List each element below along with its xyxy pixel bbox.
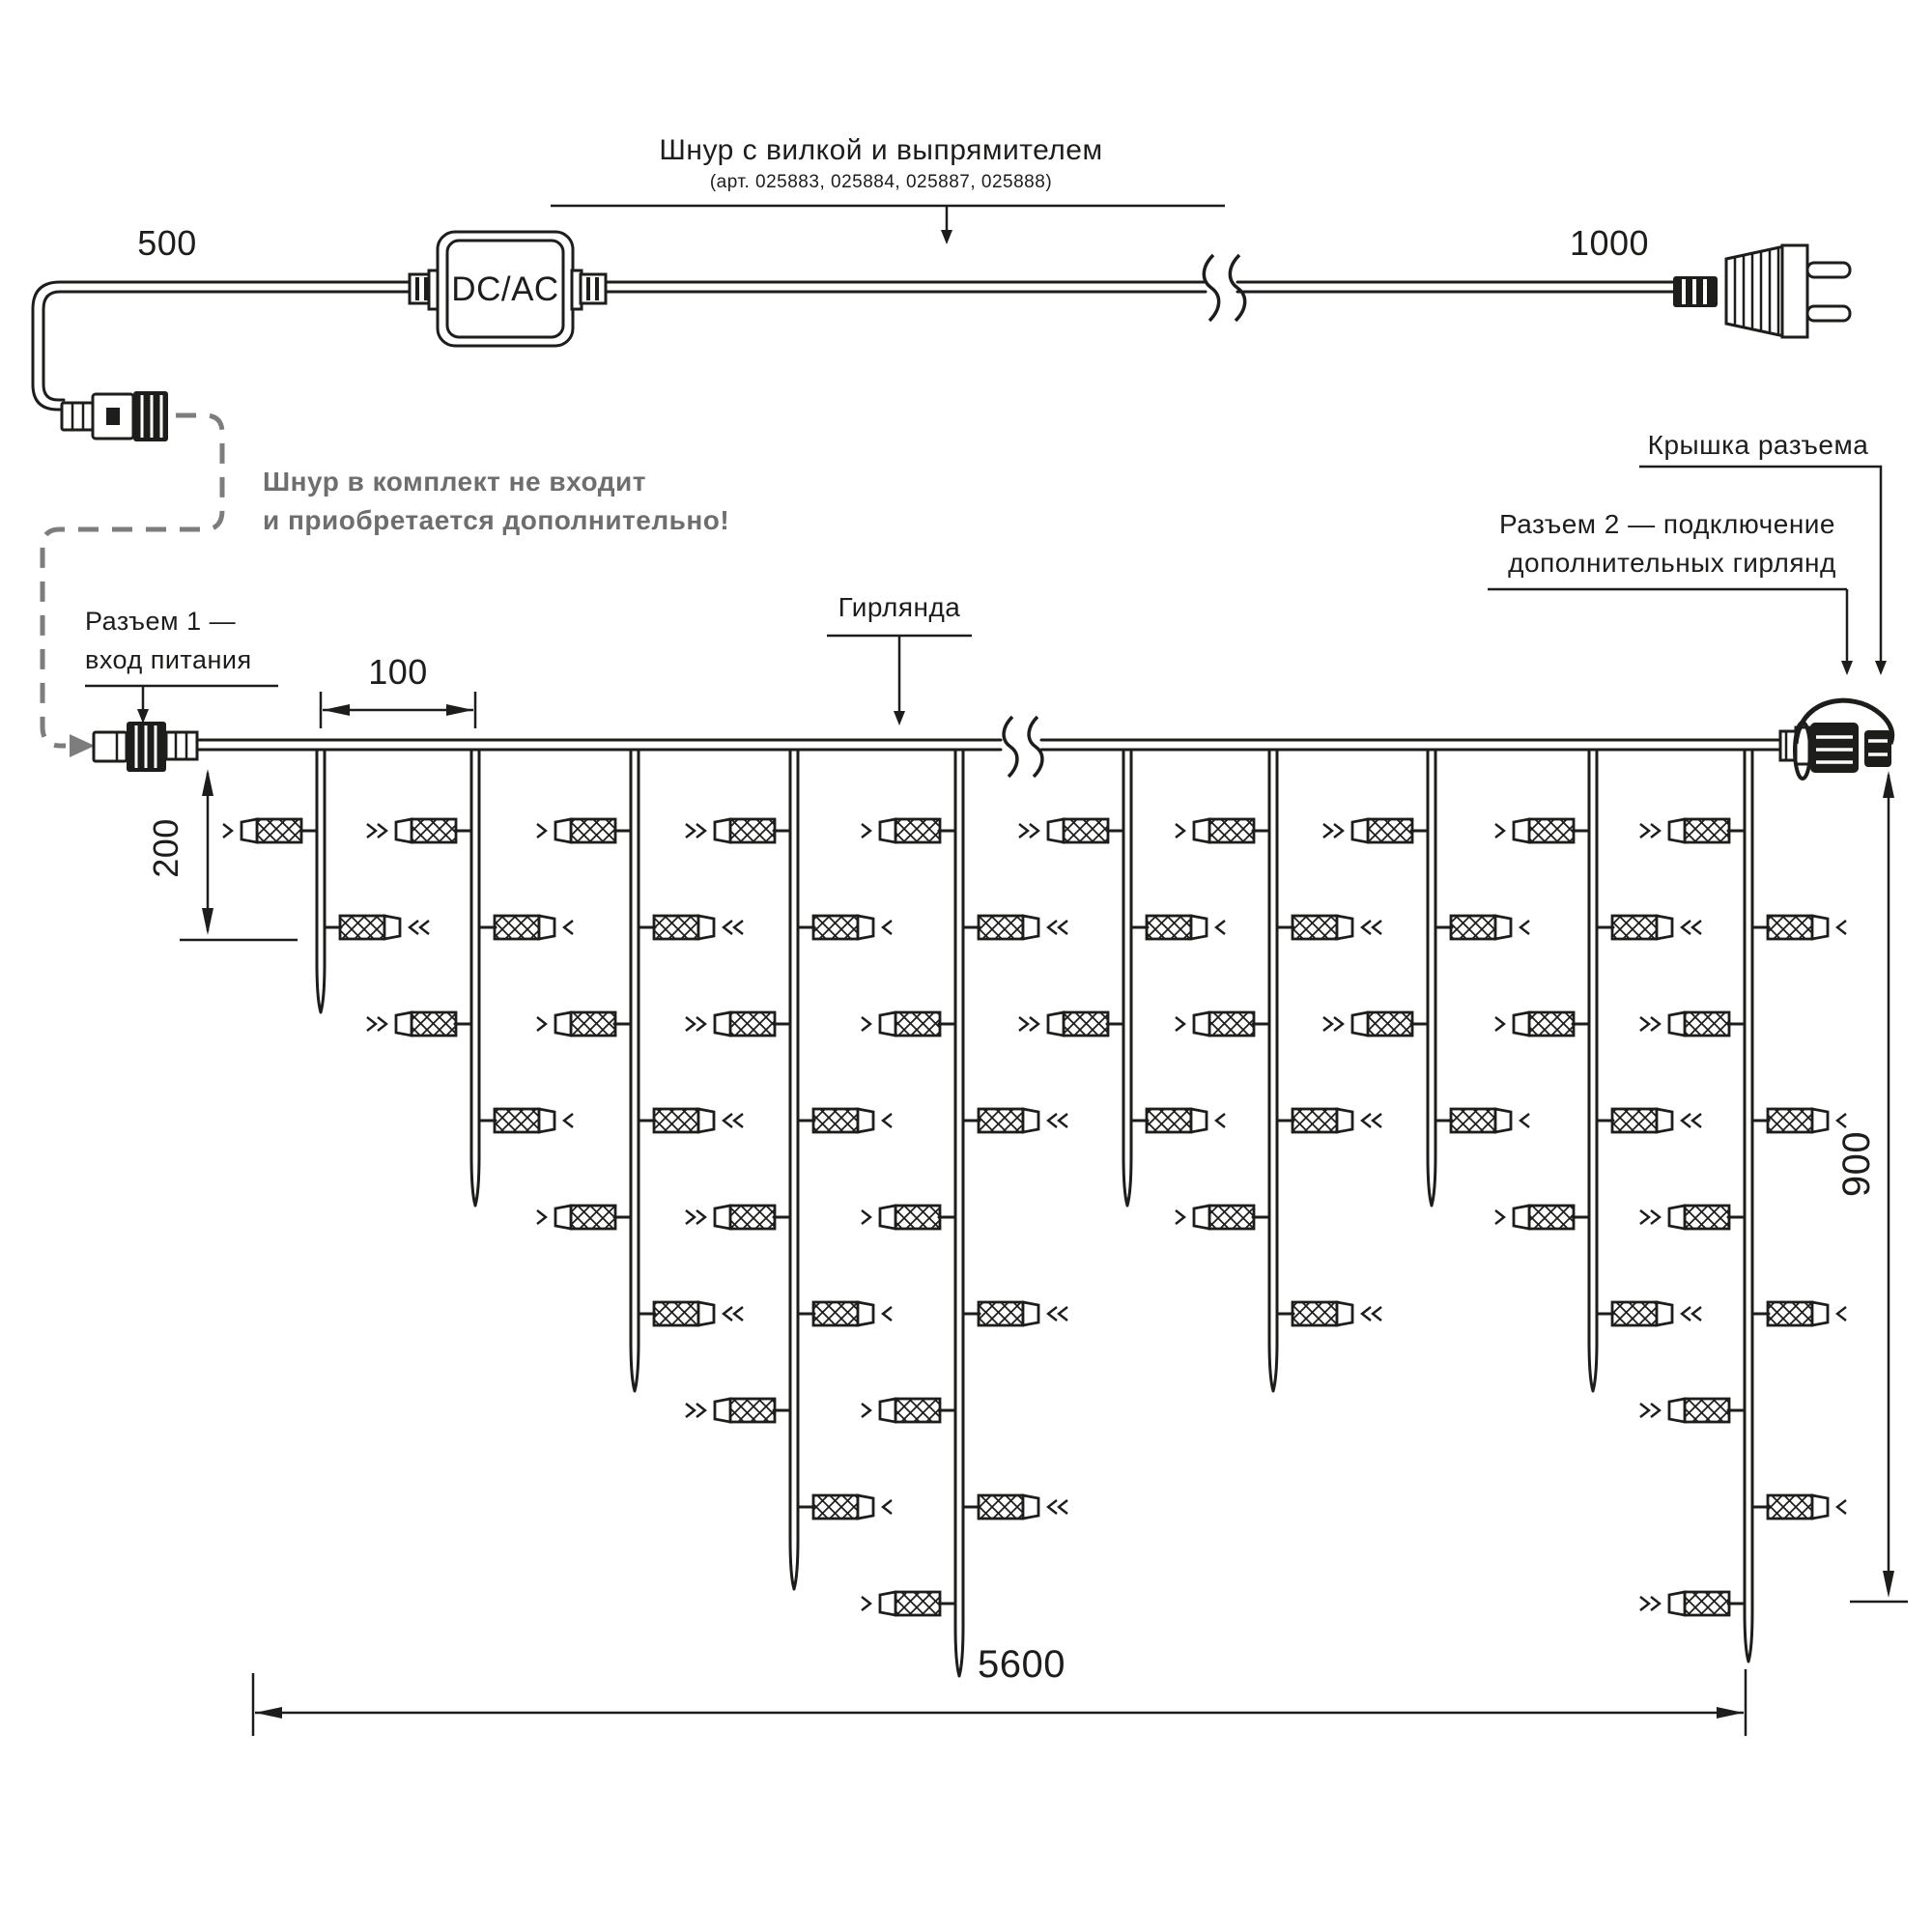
led-bulb: [1209, 1206, 1254, 1229]
led-bulb: [1768, 1302, 1812, 1325]
led-bulb: [654, 1302, 698, 1325]
led-cap-icon: [1812, 1109, 1828, 1132]
led-cap-icon: [858, 916, 873, 939]
led-bulb: [813, 1109, 858, 1132]
drop-wire: [471, 750, 479, 1206]
light-ray-icon: [734, 1307, 743, 1321]
led-bulb: [1368, 1012, 1412, 1036]
led-cap-icon: [1023, 1495, 1038, 1519]
led-cap-icon: [1495, 1109, 1511, 1132]
garland-arrowhead-icon: [894, 711, 905, 725]
light-ray-icon: [1495, 1210, 1504, 1224]
connector2-cap-icon: [1864, 730, 1891, 767]
led-bulb: [979, 1109, 1023, 1132]
led-bulb: [340, 916, 384, 939]
led-bulb: [895, 1206, 940, 1229]
led-cap-icon: [555, 1206, 571, 1229]
cap-label-text: Крышка разъема: [1648, 430, 1869, 460]
light-ray-icon: [1651, 1597, 1660, 1610]
light-ray-icon: [1651, 824, 1660, 838]
drop: [223, 750, 429, 1012]
led-cap-icon: [1657, 916, 1672, 939]
light-ray-icon: [1692, 921, 1701, 934]
light-ray-icon: [1837, 921, 1846, 934]
light-ray-icon: [724, 921, 732, 934]
light-ray-icon: [862, 1597, 870, 1610]
led-bulb: [979, 916, 1023, 939]
led-cap-icon: [715, 1206, 730, 1229]
led-cap-icon: [880, 1592, 895, 1615]
led-bulb: [1768, 1495, 1812, 1519]
led-bulb: [730, 819, 775, 842]
led-bulb: [571, 1012, 615, 1036]
light-ray-icon: [537, 1017, 546, 1031]
led-cap-icon: [1657, 1302, 1672, 1325]
led-bulb: [895, 1592, 940, 1615]
light-ray-icon: [883, 1307, 892, 1321]
light-ray-icon: [1019, 824, 1028, 838]
led-bulb: [412, 819, 456, 842]
light-ray-icon: [734, 1114, 743, 1127]
light-ray-icon: [1651, 1404, 1660, 1417]
light-ray-icon: [564, 1114, 573, 1127]
dashed-route-arrowhead-icon: [70, 734, 95, 757]
light-ray-icon: [883, 1500, 892, 1514]
title-text: Шнур с вилкой и выпрямителем: [659, 134, 1102, 166]
drop-wire: [1123, 750, 1131, 1206]
led-cap-icon: [1337, 1302, 1352, 1325]
light-ray-icon: [1651, 1210, 1660, 1224]
led-bulb: [1293, 1109, 1337, 1132]
light-ray-icon: [1323, 824, 1332, 838]
led-bulb: [1209, 1012, 1254, 1036]
drop: [686, 750, 892, 1589]
light-ray-icon: [1059, 921, 1067, 934]
led-cap-icon: [1514, 819, 1529, 842]
connector1-line2: вход питания: [85, 645, 252, 674]
connector1-icon: [94, 722, 197, 772]
light-ray-icon: [1373, 1307, 1381, 1321]
led-cap-icon: [539, 1109, 554, 1132]
led-cap-icon: [1812, 1302, 1828, 1325]
dim-100-text: 100: [368, 652, 428, 692]
dim-5600-text: 5600: [978, 1643, 1065, 1686]
light-ray-icon: [1692, 1114, 1701, 1127]
led-cap-icon: [1337, 916, 1352, 939]
light-ray-icon: [1362, 1307, 1371, 1321]
cord-break-icon: [1204, 255, 1244, 321]
drop-wire: [631, 750, 639, 1391]
light-ray-icon: [686, 1017, 695, 1031]
light-ray-icon: [1495, 824, 1504, 838]
led-cap-icon: [698, 1302, 714, 1325]
led-cap-icon: [1812, 916, 1828, 939]
drop: [1495, 750, 1701, 1391]
light-ray-icon: [378, 824, 386, 838]
light-ray-icon: [862, 1404, 870, 1417]
dc-ac-adapter: DC/AC: [410, 232, 606, 346]
led-cap-icon: [555, 1012, 571, 1036]
drop-wire: [1589, 750, 1597, 1391]
led-cap-icon: [1191, 1109, 1207, 1132]
led-cap-icon: [384, 916, 400, 939]
led-bulb: [1064, 819, 1108, 842]
led-cap-icon: [1194, 819, 1209, 842]
light-ray-icon: [1323, 1017, 1332, 1031]
led-cap-icon: [1023, 916, 1038, 939]
light-ray-icon: [1362, 921, 1371, 934]
connector2-arrowhead-icon: [1841, 661, 1853, 675]
led-cap-icon: [1023, 1109, 1038, 1132]
light-ray-icon: [1640, 1404, 1649, 1417]
led-bulb: [412, 1012, 456, 1036]
drop-wire: [317, 750, 325, 1012]
light-ray-icon: [686, 1404, 695, 1417]
light-ray-icon: [537, 824, 546, 838]
connector2-line2: дополнительных гирлянд: [1508, 548, 1836, 578]
led-cap-icon: [858, 1302, 873, 1325]
led-cap-icon: [396, 1012, 412, 1036]
led-bulb: [1209, 819, 1254, 842]
led-bulb: [1685, 1592, 1729, 1615]
connector1-label: Разъем 1 — вход питания: [85, 607, 278, 724]
garland-drops: [223, 750, 1846, 1676]
led-bulb: [813, 1302, 858, 1325]
light-ray-icon: [1334, 1017, 1343, 1031]
light-ray-icon: [1640, 824, 1649, 838]
led-cap-icon: [1669, 819, 1685, 842]
light-ray-icon: [223, 824, 232, 838]
adapter-label: DC/AC: [451, 270, 558, 308]
led-cap-icon: [555, 819, 571, 842]
led-bulb: [1685, 1206, 1729, 1229]
drop-wire: [1269, 750, 1277, 1391]
light-ray-icon: [1048, 921, 1057, 934]
note-line1: Шнур в комплект не входит: [263, 467, 646, 497]
led-cap-icon: [858, 1495, 873, 1519]
drop-wire: [1428, 750, 1435, 1206]
led-cap-icon: [698, 916, 714, 939]
led-bulb: [895, 1012, 940, 1036]
led-bulb: [654, 916, 698, 939]
light-ray-icon: [1837, 1114, 1846, 1127]
power-plug-icon: [1673, 245, 1850, 337]
light-ray-icon: [696, 1404, 705, 1417]
led-bulb: [1293, 916, 1337, 939]
light-ray-icon: [696, 824, 705, 838]
light-ray-icon: [883, 921, 892, 934]
light-ray-icon: [1048, 1307, 1057, 1321]
drop: [537, 750, 743, 1391]
light-ray-icon: [1520, 1114, 1529, 1127]
led-bulb: [730, 1012, 775, 1036]
led-bulb: [813, 916, 858, 939]
led-cap-icon: [1669, 1399, 1685, 1422]
led-cap-icon: [1495, 916, 1511, 939]
title-arrowhead-icon: [941, 230, 952, 244]
led-cap-icon: [1194, 1206, 1209, 1229]
led-cap-icon: [1048, 1012, 1064, 1036]
light-ray-icon: [1520, 921, 1529, 934]
led-cap-icon: [1669, 1206, 1685, 1229]
light-ray-icon: [1640, 1210, 1649, 1224]
led-cap-icon: [1514, 1012, 1529, 1036]
led-bulb: [813, 1495, 858, 1519]
led-cap-icon: [880, 819, 895, 842]
connector2-line1: Разъем 2 — подключение: [1499, 509, 1835, 539]
led-cap-icon: [1669, 1012, 1685, 1036]
drop-wire: [955, 750, 963, 1676]
light-ray-icon: [1059, 1500, 1067, 1514]
cap-arrowhead-icon: [1875, 661, 1887, 675]
drop-wire: [1745, 750, 1752, 1662]
led-bulb: [1064, 1012, 1108, 1036]
led-bulb: [1685, 1012, 1729, 1036]
connector1-arrowhead-icon: [137, 709, 149, 724]
cord-end-connector-icon: [62, 391, 168, 441]
led-bulb: [979, 1302, 1023, 1325]
led-bulb: [257, 819, 301, 842]
light-ray-icon: [1176, 1017, 1184, 1031]
dim-100: 100: [321, 652, 475, 728]
light-ray-icon: [1837, 1500, 1846, 1514]
led-cap-icon: [1191, 916, 1207, 939]
led-bulb: [495, 916, 539, 939]
light-ray-icon: [862, 824, 870, 838]
light-ray-icon: [1640, 1017, 1649, 1031]
drop: [1640, 750, 1846, 1662]
light-ray-icon: [420, 921, 429, 934]
connector2-icon: [1780, 700, 1892, 779]
led-bulb: [1147, 1109, 1191, 1132]
drop: [1019, 750, 1225, 1206]
dim-200: 200: [146, 769, 298, 940]
light-ray-icon: [1682, 1114, 1690, 1127]
led-bulb: [1293, 1302, 1337, 1325]
led-bulb: [730, 1399, 775, 1422]
led-bulb: [895, 1399, 940, 1422]
led-cap-icon: [1669, 1592, 1685, 1615]
led-bulb: [1768, 916, 1812, 939]
light-ray-icon: [1048, 1500, 1057, 1514]
led-cap-icon: [880, 1012, 895, 1036]
drop: [862, 750, 1067, 1676]
light-ray-icon: [1651, 1017, 1660, 1031]
led-bulb: [1612, 1302, 1657, 1325]
led-cap-icon: [715, 1399, 730, 1422]
garland-break-icon: [1004, 717, 1042, 777]
light-ray-icon: [1373, 1114, 1381, 1127]
led-cap-icon: [880, 1399, 895, 1422]
led-cap-icon: [1194, 1012, 1209, 1036]
led-cap-icon: [396, 819, 412, 842]
light-ray-icon: [1030, 1017, 1038, 1031]
led-bulb: [1768, 1109, 1812, 1132]
led-bulb: [571, 819, 615, 842]
light-ray-icon: [1495, 1017, 1504, 1031]
led-cap-icon: [539, 916, 554, 939]
led-cap-icon: [1657, 1109, 1672, 1132]
light-ray-icon: [1176, 1210, 1184, 1224]
light-ray-icon: [367, 1017, 376, 1031]
led-cap-icon: [1023, 1302, 1038, 1325]
garland-label-text: Гирлянда: [838, 592, 961, 622]
dim-500-text: 500: [137, 223, 197, 263]
drop: [1323, 750, 1529, 1206]
light-ray-icon: [724, 1307, 732, 1321]
light-ray-icon: [862, 1210, 870, 1224]
wiring-diagram: Шнур с вилкой и выпрямителем (арт. 02588…: [0, 0, 1932, 1932]
led-cap-icon: [1048, 819, 1064, 842]
light-ray-icon: [724, 1114, 732, 1127]
light-ray-icon: [537, 1210, 546, 1224]
garland-wire: [197, 740, 1782, 750]
drop: [1176, 750, 1381, 1391]
led-bulb: [1612, 916, 1657, 939]
led-cap-icon: [1352, 819, 1368, 842]
led-bulb: [979, 1495, 1023, 1519]
light-ray-icon: [686, 1210, 695, 1224]
led-cap-icon: [715, 819, 730, 842]
led-bulb: [1451, 1109, 1495, 1132]
light-ray-icon: [696, 1017, 705, 1031]
led-bulb: [1529, 819, 1574, 842]
led-cap-icon: [1337, 1109, 1352, 1132]
drop: [367, 750, 573, 1206]
led-bulb: [1529, 1206, 1574, 1229]
led-bulb: [1612, 1109, 1657, 1132]
not-included-note: Шнур в комплект не входит и приобретаетс…: [263, 467, 729, 535]
note-line2: и приобретается дополнительно!: [263, 505, 729, 535]
light-ray-icon: [1640, 1597, 1649, 1610]
dim-900-text: 900: [1835, 1131, 1878, 1197]
led-cap-icon: [715, 1012, 730, 1036]
led-bulb: [1685, 819, 1729, 842]
led-bulb: [495, 1109, 539, 1132]
light-ray-icon: [1334, 824, 1343, 838]
dim-900: 900: [1835, 771, 1908, 1602]
light-ray-icon: [883, 1114, 892, 1127]
light-ray-icon: [410, 921, 418, 934]
led-bulb: [1529, 1012, 1574, 1036]
led-cap-icon: [1514, 1206, 1529, 1229]
light-ray-icon: [367, 824, 376, 838]
led-bulb: [895, 819, 940, 842]
light-ray-icon: [1682, 921, 1690, 934]
subtitle-text: (арт. 025883, 025884, 025887, 025888): [710, 172, 1052, 192]
light-ray-icon: [1030, 824, 1038, 838]
dashed-route: [43, 415, 222, 746]
light-ray-icon: [1048, 1114, 1057, 1127]
light-ray-icon: [1837, 1307, 1846, 1321]
light-ray-icon: [1692, 1307, 1701, 1321]
connector1-line1: Разъем 1 —: [85, 607, 236, 636]
light-ray-icon: [1216, 1114, 1225, 1127]
led-bulb: [654, 1109, 698, 1132]
led-bulb: [1685, 1399, 1729, 1422]
garland-label: Гирлянда: [827, 592, 972, 725]
led-bulb: [730, 1206, 775, 1229]
light-ray-icon: [1682, 1307, 1690, 1321]
light-ray-icon: [734, 921, 743, 934]
connector2-label: Разъем 2 — подключение дополнительных ги…: [1488, 509, 1853, 675]
led-cap-icon: [858, 1109, 873, 1132]
light-ray-icon: [1176, 824, 1184, 838]
light-ray-icon: [1216, 921, 1225, 934]
dim-1000-text: 1000: [1570, 223, 1649, 263]
led-cap-icon: [241, 819, 257, 842]
led-cap-icon: [1352, 1012, 1368, 1036]
light-ray-icon: [696, 1210, 705, 1224]
led-cap-icon: [880, 1206, 895, 1229]
light-ray-icon: [1362, 1114, 1371, 1127]
dim-5600: 5600: [253, 1643, 1746, 1736]
light-ray-icon: [686, 824, 695, 838]
led-cap-icon: [698, 1109, 714, 1132]
power-cord-title: Шнур с вилкой и выпрямителем (арт. 02588…: [551, 134, 1225, 244]
diagram-canvas: Шнур с вилкой и выпрямителем (арт. 02588…: [0, 0, 1932, 1932]
drop-wire: [790, 750, 798, 1589]
light-ray-icon: [862, 1017, 870, 1031]
light-ray-icon: [378, 1017, 386, 1031]
led-bulb: [571, 1206, 615, 1229]
light-ray-icon: [1019, 1017, 1028, 1031]
led-bulb: [1368, 819, 1412, 842]
led-cap-icon: [1812, 1495, 1828, 1519]
light-ray-icon: [1059, 1114, 1067, 1127]
light-ray-icon: [1059, 1307, 1067, 1321]
light-ray-icon: [1373, 921, 1381, 934]
led-bulb: [1147, 916, 1191, 939]
led-bulb: [1451, 916, 1495, 939]
light-ray-icon: [564, 921, 573, 934]
dim-200-text: 200: [146, 818, 185, 878]
power-cord-cable: [33, 282, 425, 410]
plug-cable: [606, 282, 1673, 292]
